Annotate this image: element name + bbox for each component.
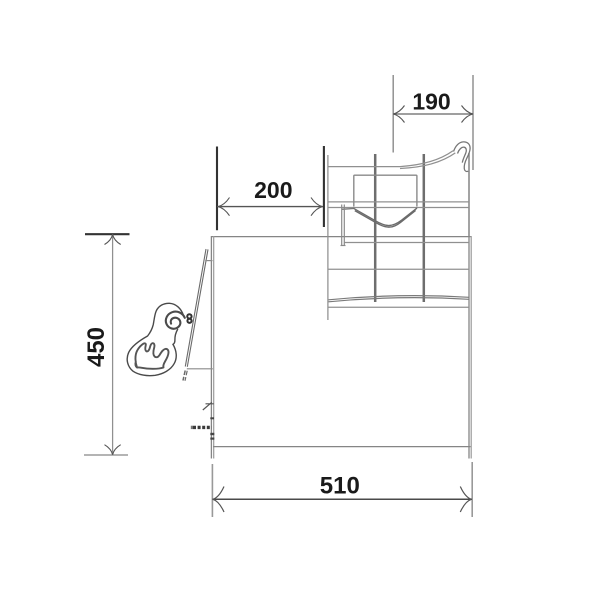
svg-text:450: 450	[83, 327, 110, 367]
svg-text:190: 190	[412, 89, 450, 115]
svg-text:200: 200	[254, 177, 292, 203]
svg-text:510: 510	[320, 473, 360, 500]
